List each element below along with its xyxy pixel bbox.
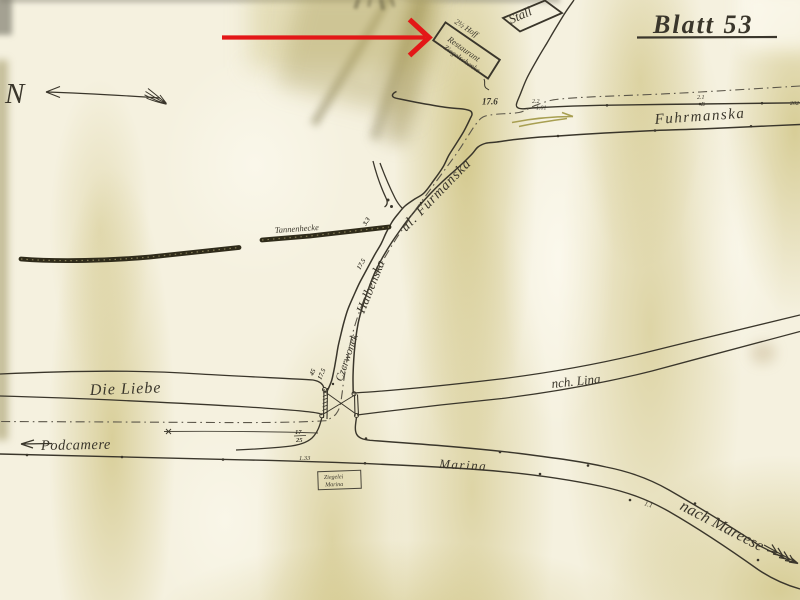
svg-text:Tannenhecke: Tannenhecke: [274, 222, 319, 235]
svg-text:1.01: 1.01: [536, 106, 547, 112]
svg-text:3.3: 3.3: [361, 216, 372, 228]
svg-text:17.5: 17.5: [356, 257, 368, 271]
svg-text:2.1: 2.1: [697, 95, 705, 101]
svg-text:202: 202: [790, 101, 799, 107]
svg-text:Marina: Marina: [438, 456, 488, 474]
svg-text:nach Mareese: nach Mareese: [677, 497, 766, 555]
svg-text:Fuhrmanska: Fuhrmanska: [653, 106, 746, 128]
svg-text:N: N: [4, 78, 26, 110]
svg-text:Marina: Marina: [324, 482, 343, 489]
svg-text:Die Liebe: Die Liebe: [89, 380, 162, 400]
svg-text:17.6: 17.6: [482, 97, 498, 107]
svg-text:Podcamere: Podcamere: [40, 437, 111, 454]
svg-text:1.33: 1.33: [299, 455, 311, 462]
svg-text:1.1: 1.1: [643, 500, 653, 509]
svg-text:Ziegelei: Ziegelei: [324, 474, 344, 481]
svg-text:2.2: 2.2: [532, 99, 540, 105]
svg-text:25: 25: [295, 437, 303, 444]
svg-text:B: B: [701, 102, 705, 108]
svg-text:ul. Furmanska: ul. Furmanska: [398, 156, 475, 235]
svg-text:Blatt 53: Blatt 53: [652, 10, 754, 39]
svg-text:17.5: 17.5: [316, 367, 327, 381]
svg-text:17: 17: [295, 429, 302, 436]
svg-text:Czerwonek: Czerwonek: [333, 332, 361, 383]
svg-text:nch. Lina: nch. Lina: [551, 371, 602, 391]
